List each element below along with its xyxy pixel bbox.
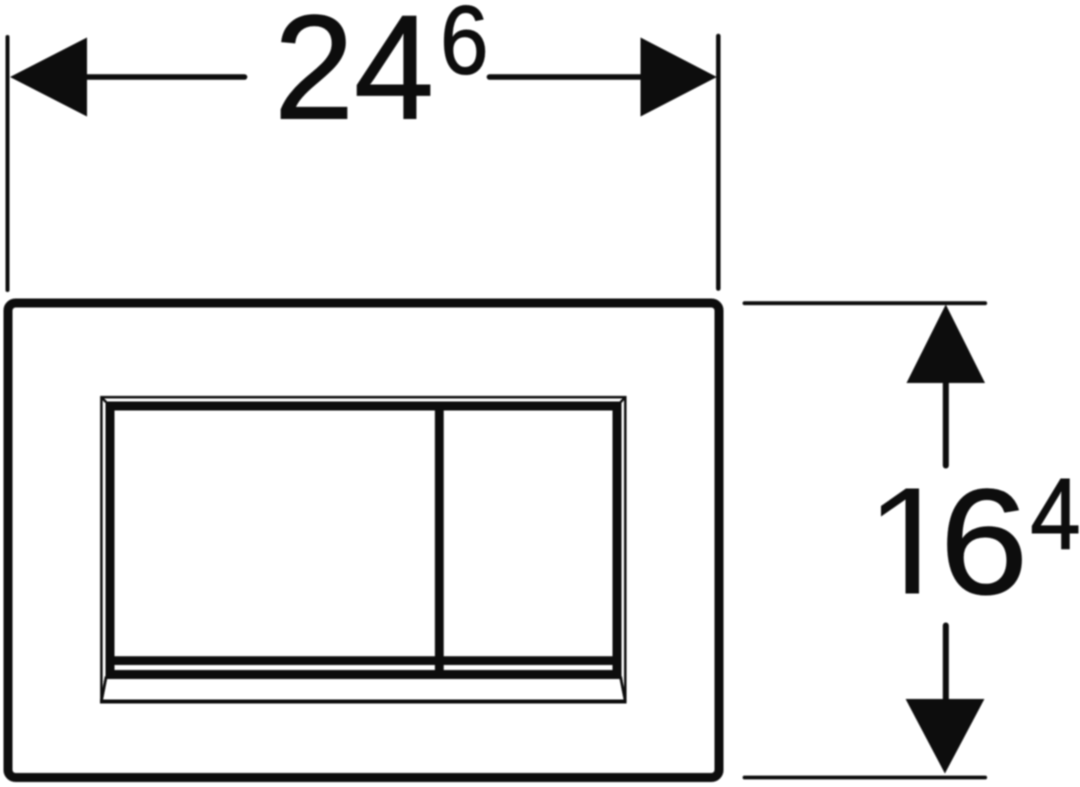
svg-text:4: 4: [1030, 457, 1080, 571]
svg-text:6: 6: [440, 0, 489, 95]
svg-text:24: 24: [274, 0, 434, 151]
svg-text:6: 6: [940, 458, 1029, 626]
